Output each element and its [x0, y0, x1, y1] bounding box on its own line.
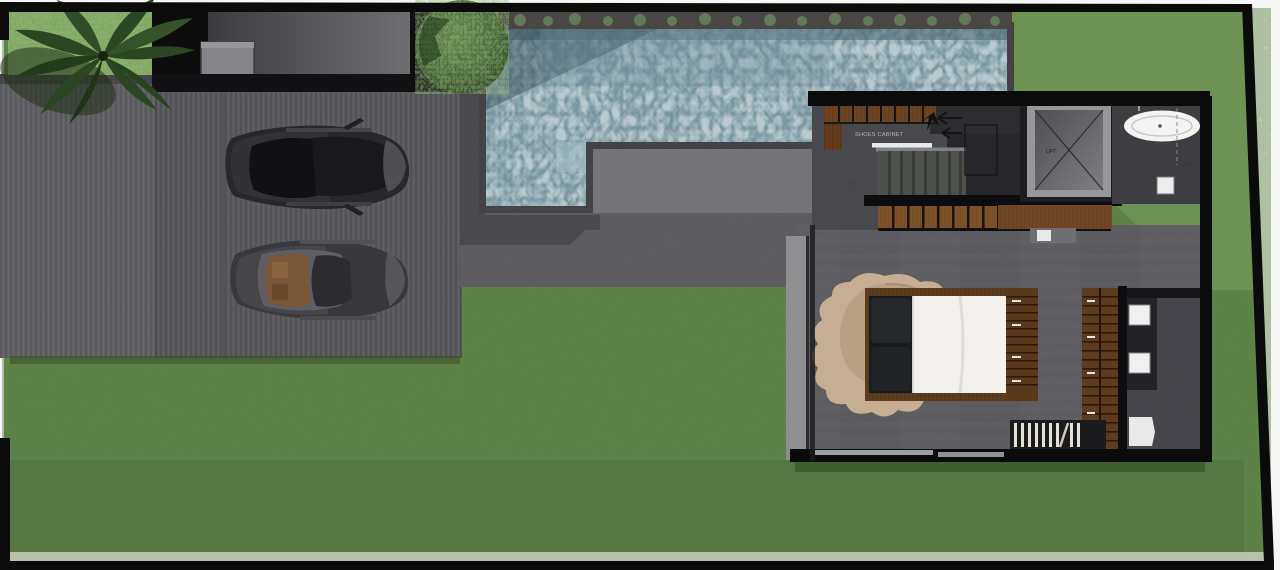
svg-text:SHOES CABINET: SHOES CABINET [855, 132, 904, 138]
svg-text:LIFT: LIFT [1046, 149, 1056, 155]
